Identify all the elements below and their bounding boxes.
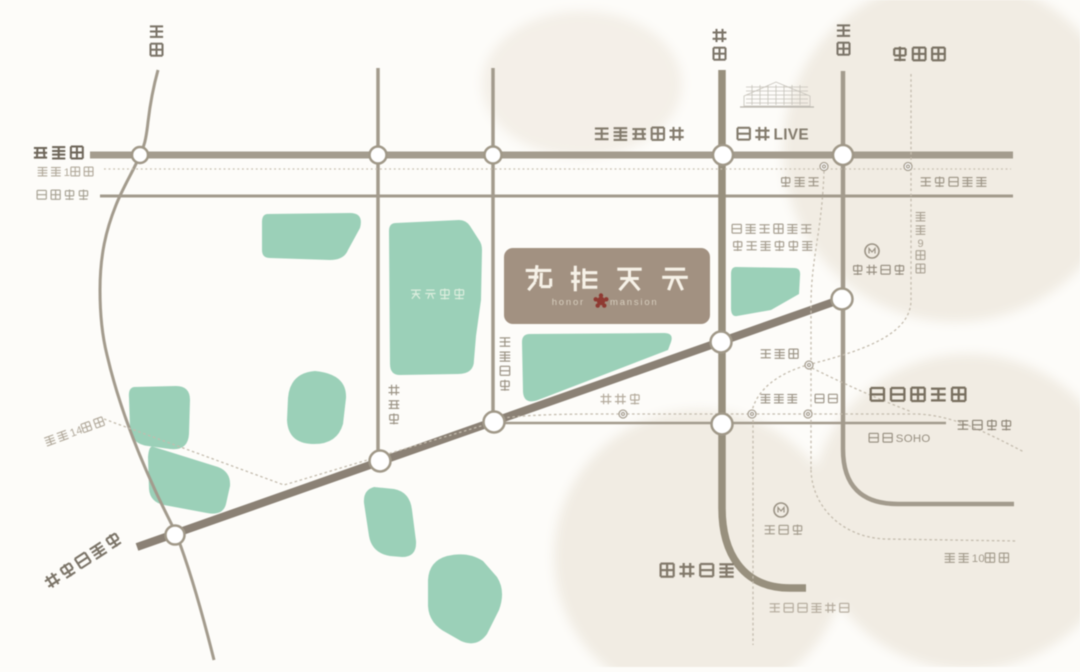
- svg-text:1: 1: [64, 167, 70, 179]
- svg-text:10: 10: [972, 553, 985, 565]
- svg-text:SOHO: SOHO: [896, 433, 931, 445]
- svg-text:mansion: mansion: [610, 297, 659, 308]
- svg-text:9: 9: [917, 238, 923, 250]
- svg-text:honor: honor: [552, 297, 585, 308]
- svg-text:LIVE: LIVE: [774, 127, 809, 144]
